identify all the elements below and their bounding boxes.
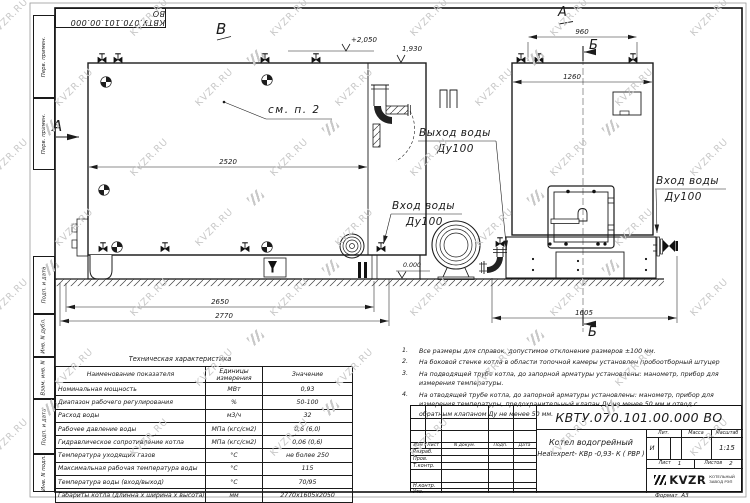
col-podp: Подп. — [488, 442, 513, 448]
logo-subtitle-2: ЗАВОД РЭП — [709, 480, 735, 485]
water-outlet-dn: Ду100 — [437, 143, 474, 155]
param-unit: % — [206, 396, 263, 409]
dim-2770: 2770 — [215, 312, 233, 320]
position-marker-icon — [112, 242, 123, 253]
position-marker-icon — [99, 185, 110, 196]
param-unit: МПа (кгс/см2) — [206, 422, 263, 435]
sheet-value: 1 — [678, 461, 682, 467]
param-value: 70/95 — [263, 476, 353, 489]
param-value: не более 250 — [263, 449, 353, 462]
margin-box: Перв. примен. — [33, 15, 55, 98]
water-outlet-label: Выход воды — [419, 127, 491, 139]
param-value: 50-100 — [263, 396, 353, 409]
margin-label: Инв. N подл. — [41, 455, 47, 491]
format-label: Формат — [655, 493, 678, 499]
row-tkontr: Т.контр. — [413, 463, 435, 469]
table-row: Гидравлическое сопротивление котлаМПа (к… — [56, 436, 353, 449]
param-unit: °С — [206, 476, 263, 489]
note-text: На подводящей трубе котла, до запорной а… — [419, 370, 724, 390]
see-note-label: см. п. 2 — [268, 104, 321, 116]
table-row: Расход водым3/ч32 — [56, 409, 353, 422]
view-label-v: В — [216, 20, 226, 38]
table-row: Номинальная мощностьМВт0,93 — [56, 383, 353, 396]
kvzr-logo-icon — [654, 475, 666, 485]
margin-label: Перв. примен. — [41, 114, 47, 154]
note-number: 1. — [402, 347, 419, 357]
tech-table: Наименование показателя Единицы измерени… — [55, 366, 353, 503]
row-razrab: Разраб. — [413, 449, 433, 455]
param-unit: мм — [206, 489, 263, 502]
param-value: 0,6 (6,0) — [263, 422, 353, 435]
margin-box: Подп. и дата — [33, 399, 55, 454]
dim-2650: 2650 — [211, 298, 229, 306]
sheets-label: Листов — [704, 461, 722, 466]
table-row: Диапазон рабочего регулирования%50-100 — [56, 396, 353, 409]
top-stamp-number: КВТУ.070.101.00.000 ВО — [56, 9, 165, 27]
top-stamp: КВТУ.070.101.00.000 ВО — [55, 8, 166, 28]
valve-icon — [99, 243, 107, 252]
table-row: Температура воды (вход/выход)°С70/95 — [56, 476, 353, 489]
tech-table-title: Техническая характеристика — [55, 355, 305, 363]
param-name: Номинальная мощность — [56, 383, 206, 396]
company-logo: KVZR КОТЕЛЬНЫЙ ЗАВОД РЭП — [647, 468, 742, 491]
masshtab-value: 1:15 — [711, 437, 743, 459]
table-row: Температура уходящих газов°Сне более 250 — [56, 449, 353, 462]
col-header-name: Наименование показателя — [56, 367, 206, 383]
doc-number: КВТУ.070.101.00.000 ВО — [537, 406, 741, 428]
note-item: 2.На боковой стенке котла в области топо… — [402, 358, 742, 368]
valve-icon — [161, 243, 169, 252]
param-unit: МВт — [206, 383, 263, 396]
drawing-sheet: КВТУ.070.101.00.000 ВО Перв. примен. Пер… — [0, 0, 750, 500]
table-header-row: Наименование показателя Единицы измерени… — [56, 367, 353, 383]
valve-icon — [114, 54, 122, 63]
margin-box: Инв. N подл. — [33, 454, 55, 492]
margin-box: Подп. и дата — [33, 256, 55, 314]
note-item: 1.Все размеры для справок, допустимое от… — [402, 347, 742, 357]
valve-icon — [629, 54, 637, 63]
param-name: Температура воды (вход/выход) — [56, 476, 206, 489]
level-top: +2,050 — [351, 36, 377, 44]
water-inlet-dn: Ду100 — [406, 216, 443, 228]
row-prov: Пров. — [413, 456, 428, 462]
param-unit: м3/ч — [206, 409, 263, 422]
col-list: Лист — [425, 442, 441, 448]
level-ground: 0.000 — [403, 262, 421, 269]
col-izm: Изм — [411, 442, 425, 448]
dim-960: 960 — [575, 28, 588, 36]
param-value: 0,06 (0,6) — [263, 436, 353, 449]
margin-label: Перв. примен. — [41, 36, 47, 76]
position-marker-icon — [262, 75, 273, 86]
param-unit: °С — [206, 462, 263, 475]
dim-2520: 2520 — [219, 158, 237, 166]
col-ndoc: N докум. — [441, 442, 488, 448]
valve-icon — [496, 238, 504, 247]
format-value: А3 — [681, 493, 688, 499]
title-block: КВТУ.070.101.00.000 ВО Изм Лист N докум.… — [410, 405, 742, 492]
note-item: 3.На подводящей трубе котла, до запорной… — [402, 370, 742, 390]
param-name: Габариты котла (длинна х ширина х высота… — [56, 489, 206, 502]
note-number: 2. — [402, 358, 419, 368]
param-name: Диапазон рабочего регулирования — [56, 396, 206, 409]
sheet-label: Лист — [659, 461, 671, 466]
water-inlet2-dn: Ду100 — [665, 191, 702, 203]
table-row: Габариты котла (длинна х ширина х высота… — [56, 489, 353, 502]
format-note: Формат А3 — [655, 493, 689, 499]
view-label-a-right: А — [558, 5, 567, 20]
param-unit: МПа (кгс/см2) — [206, 436, 263, 449]
valve-icon — [241, 243, 249, 252]
note-text: На боковой стенке котла в области топочн… — [419, 358, 724, 368]
valve-icon — [535, 54, 543, 63]
valve-icon — [312, 54, 320, 63]
view-label-a-left: А — [52, 117, 62, 135]
param-name: Температура уходящих газов — [56, 449, 206, 462]
margin-label: Подп. и дата — [41, 267, 47, 304]
margin-box: Инв. N дубл. — [33, 314, 55, 357]
margin-label: Взам. инв. N — [41, 360, 47, 395]
valve-icon — [98, 54, 106, 63]
lit-value: И — [646, 437, 658, 459]
masshtab-label: Масштаб — [711, 429, 743, 437]
massa-label: Масса — [681, 429, 711, 437]
param-value: 32 — [263, 409, 353, 422]
param-value: 0,93 — [263, 383, 353, 396]
param-name: Расход воды — [56, 409, 206, 422]
col-header-unit: Единицы измерения — [206, 367, 263, 383]
param-value: 115 — [263, 462, 353, 475]
note-text: Все размеры для справок, допустимое откл… — [419, 347, 724, 357]
product-designation: Heatexpert- КВр -0,93- К ( РВР ) — [534, 448, 648, 459]
note-number: 3. — [402, 370, 419, 390]
col-data: Дата — [513, 442, 536, 448]
section-label-b-bottom: Б — [588, 325, 597, 340]
valve-icon — [261, 54, 269, 63]
table-row: Рабочее давление водыМПа (кгс/см2)0,6 (6… — [56, 422, 353, 435]
sheets-value: 2 — [729, 461, 733, 467]
param-value: 2770х1605х2050 — [263, 489, 353, 502]
param-name: Максимальная рабочая температура воды — [56, 462, 206, 475]
section-label-b-top: Б — [589, 38, 598, 53]
col-header-value: Значение — [263, 367, 353, 383]
product-name: Котел водогрейный — [537, 436, 645, 448]
table-row: Максимальная рабочая температура воды°С1… — [56, 462, 353, 475]
param-name: Гидравлическое сопротивление котла — [56, 436, 206, 449]
position-marker-icon — [101, 77, 112, 88]
dim-1260: 1260 — [563, 73, 581, 81]
param-unit: °С — [206, 449, 263, 462]
water-inlet-label: Вход воды — [392, 200, 455, 212]
kvzr-logo-text: KVZR — [669, 473, 706, 487]
margin-box: Взам. инв. N — [33, 357, 55, 399]
lit-label: Лит. — [646, 429, 681, 437]
position-marker-icon — [262, 242, 273, 253]
margin-label: Инв. N дубл. — [41, 318, 47, 353]
valve-icon — [517, 54, 525, 63]
water-inlet2-label: Вход воды — [656, 175, 719, 187]
level-flue: 1,930 — [402, 45, 422, 53]
valve-icon — [377, 243, 385, 252]
param-name: Рабочее давление воды — [56, 422, 206, 435]
margin-label: Подп. и дата — [41, 408, 47, 445]
dim-1605: 1605 — [575, 309, 593, 317]
row-utv: Утв. — [413, 489, 424, 495]
